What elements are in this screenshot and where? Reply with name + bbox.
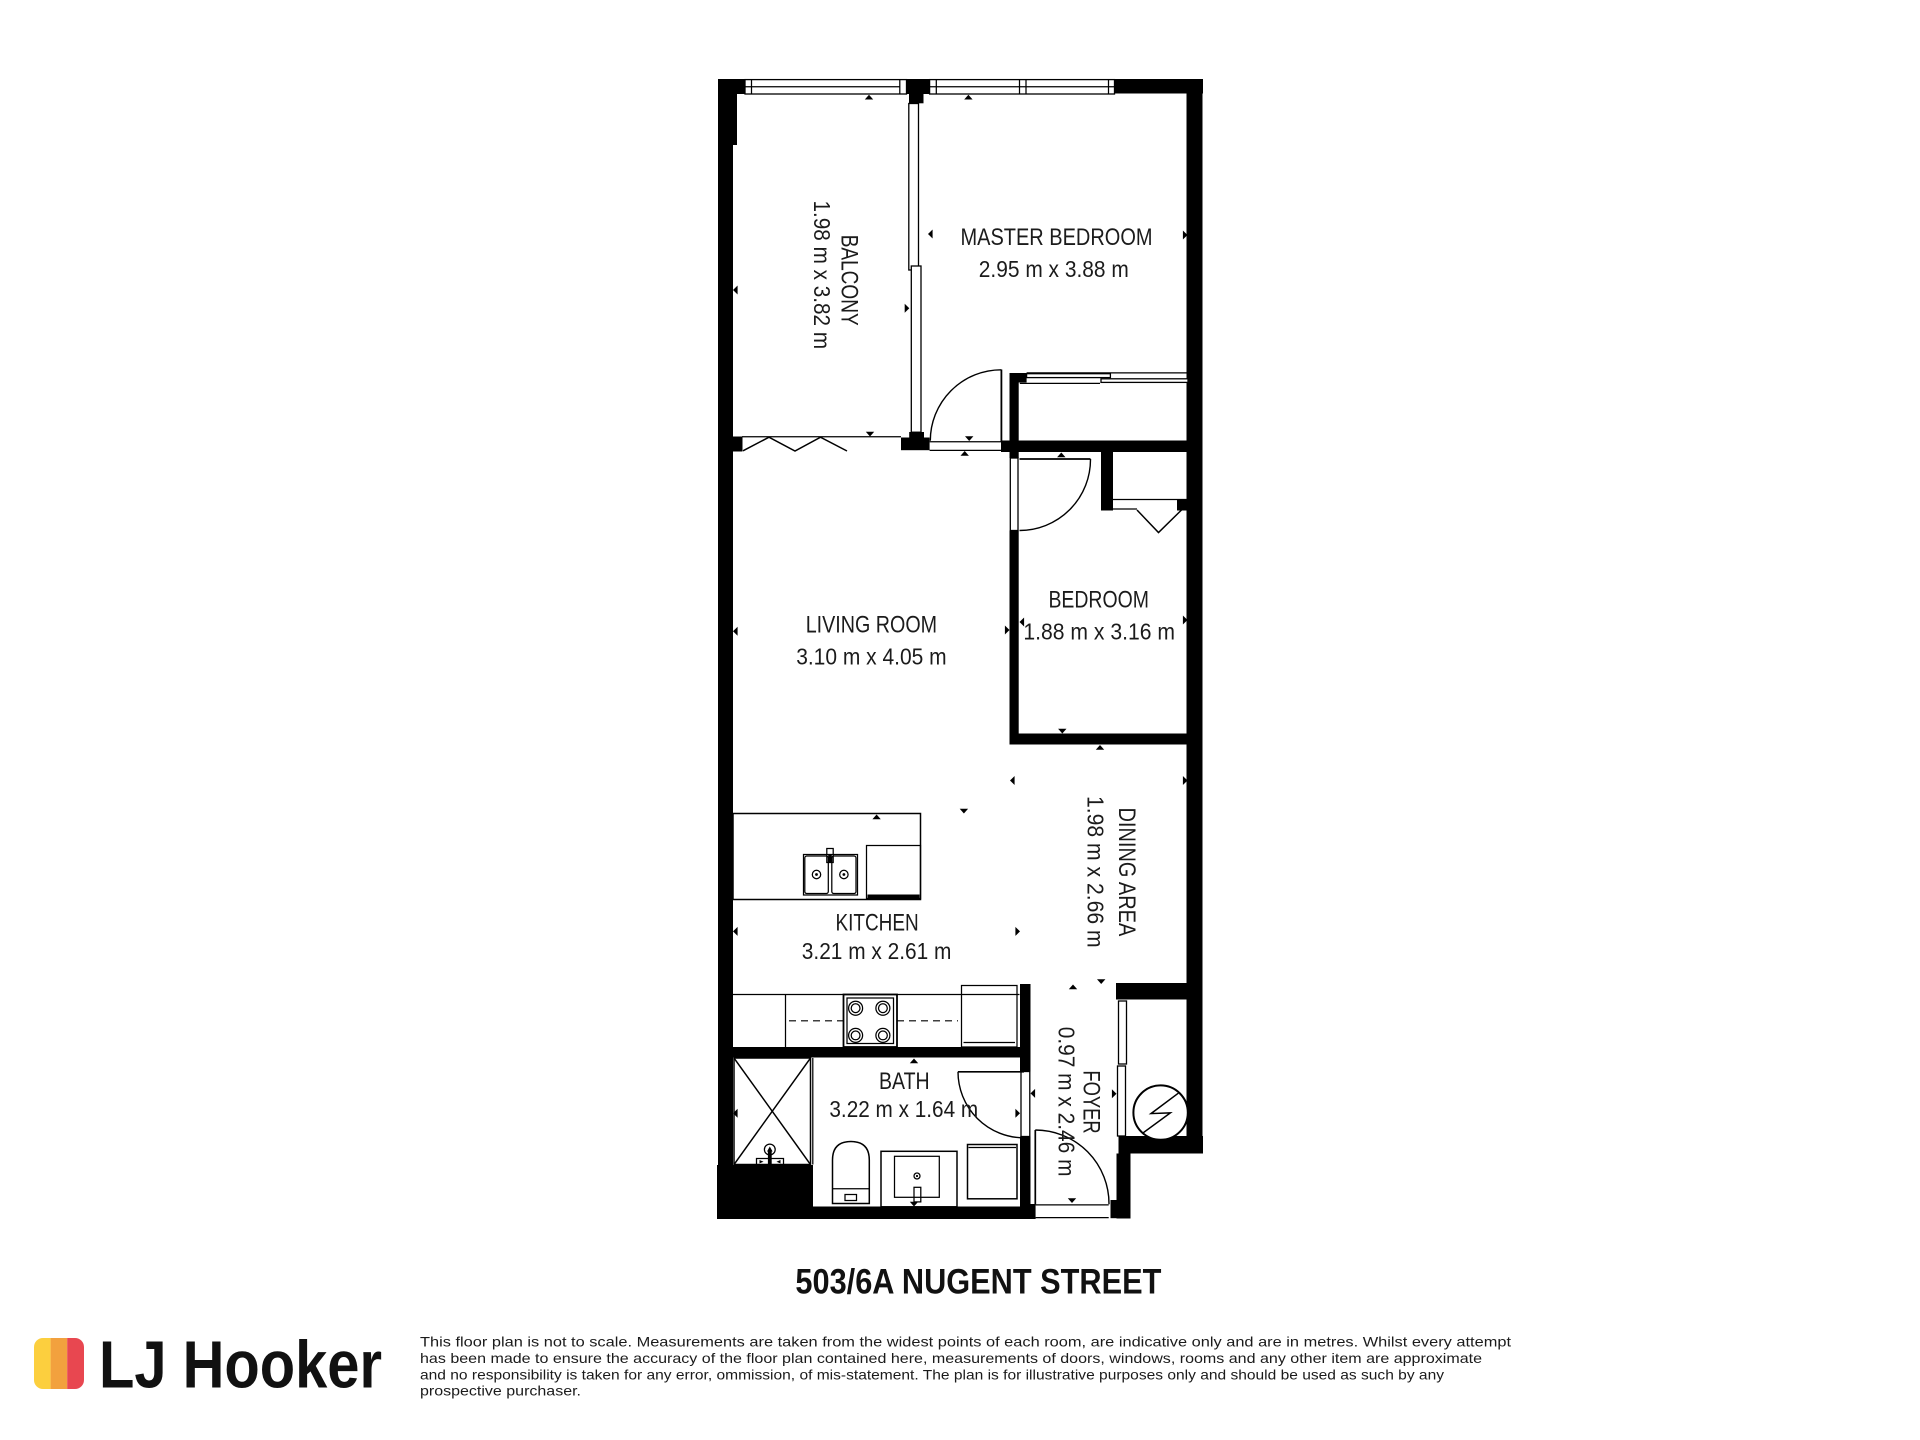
svg-text:3.10 m x 4.05 m: 3.10 m x 4.05 m bbox=[796, 644, 946, 670]
svg-text:FOYER: FOYER bbox=[1078, 1070, 1105, 1133]
svg-text:503/6A NUGENT STREET: 503/6A NUGENT STREET bbox=[795, 1263, 1161, 1302]
svg-text:3.21 m x 2.61 m: 3.21 m x 2.61 m bbox=[802, 938, 952, 964]
svg-text:KITCHEN: KITCHEN bbox=[836, 910, 919, 937]
svg-text:1.98 m x 3.82 m: 1.98 m x 3.82 m bbox=[809, 200, 835, 349]
svg-text:BEDROOM: BEDROOM bbox=[1048, 586, 1149, 613]
svg-text:BATH: BATH bbox=[879, 1068, 930, 1095]
svg-text:prospective purchaser.: prospective purchaser. bbox=[420, 1383, 581, 1399]
svg-text:BALCONY: BALCONY bbox=[836, 235, 863, 326]
svg-text:LJ Hooker: LJ Hooker bbox=[99, 1328, 382, 1403]
svg-text:DINING AREA: DINING AREA bbox=[1113, 808, 1140, 937]
svg-text:This floor plan is not to scal: This floor plan is not to scale. Measure… bbox=[420, 1333, 1511, 1349]
svg-text:3.22 m x 1.64 m: 3.22 m x 1.64 m bbox=[829, 1096, 978, 1122]
svg-text:1.88 m x 3.16 m: 1.88 m x 3.16 m bbox=[1023, 618, 1175, 644]
svg-text:has been made to ensure the ac: has been made to ensure the accuracy of … bbox=[420, 1350, 1482, 1366]
svg-text:1.98 m x 2.66 m: 1.98 m x 2.66 m bbox=[1083, 796, 1109, 948]
svg-text:and no responsibility is taken: and no responsibility is taken for any e… bbox=[420, 1366, 1444, 1382]
svg-text:0.97 m x 2.46 m: 0.97 m x 2.46 m bbox=[1053, 1027, 1079, 1177]
svg-text:MASTER BEDROOM: MASTER BEDROOM bbox=[961, 224, 1153, 251]
svg-text:2.95 m x 3.88 m: 2.95 m x 3.88 m bbox=[979, 256, 1129, 282]
svg-text:LIVING ROOM: LIVING ROOM bbox=[806, 612, 937, 639]
